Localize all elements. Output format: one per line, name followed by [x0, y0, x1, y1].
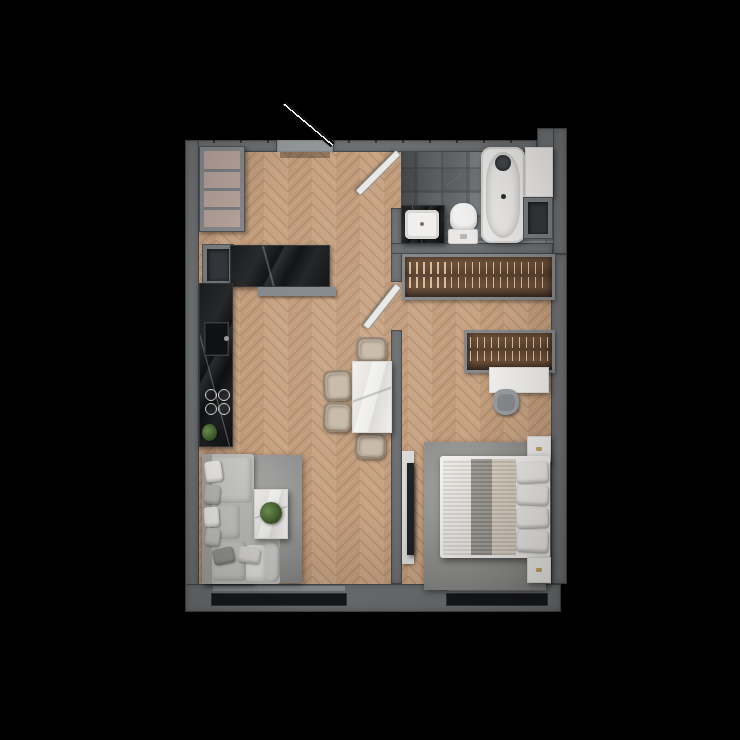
desk-chair-seat — [497, 394, 515, 411]
bathroom-shelf-cabinet — [525, 147, 553, 197]
wall-bathroom-bedroom-divider — [391, 243, 553, 254]
desk-chair — [493, 389, 519, 415]
kitchen-faucet — [224, 336, 229, 341]
kitchen-counter-run — [199, 283, 233, 447]
bedroom-wardrobe-top — [402, 254, 555, 300]
chair-seat — [327, 374, 349, 398]
bed-pillow — [516, 507, 549, 528]
bed-throw-gray — [471, 459, 492, 555]
hanger-rail — [470, 337, 549, 348]
bed-duvet-beige — [492, 459, 516, 555]
entry-shelf-divider — [204, 169, 240, 172]
burner — [205, 403, 217, 415]
window-bedroom — [446, 593, 548, 606]
sofa-pillow — [203, 507, 219, 528]
bed-pillow — [515, 461, 548, 484]
wall-right-bedroom — [551, 254, 567, 584]
entrance-shadow — [280, 152, 330, 158]
sofa-pillow — [203, 484, 221, 505]
bathtub — [481, 147, 525, 243]
bed-pillow — [515, 529, 548, 553]
chair-seat — [326, 405, 348, 428]
dining-chair-left-1 — [322, 370, 352, 402]
sofa-pillow — [204, 527, 221, 547]
toilet-flush-button — [460, 234, 467, 239]
wall-right-bathroom — [553, 128, 567, 254]
chair-seat — [360, 341, 383, 358]
dining-chair-top — [356, 337, 387, 362]
sofa-armrest-end — [264, 541, 280, 582]
hanger-rail — [409, 277, 548, 288]
entry-shelf-unit — [199, 146, 245, 232]
kitchen-niche-inset — [207, 249, 229, 281]
entry-shelf-divider — [204, 207, 240, 210]
nightstand-bottom — [527, 557, 551, 583]
dining-table — [352, 361, 392, 433]
kitchen-upper-counter — [230, 245, 330, 287]
floor-plan-stage — [0, 0, 740, 740]
kitchen-cooktop — [202, 387, 232, 417]
bathroom-niche-inset — [528, 202, 548, 234]
sofa-pillow — [237, 546, 261, 565]
dining-chair-bottom — [355, 432, 387, 459]
basin-drain — [420, 222, 424, 226]
toilet-bowl — [450, 203, 477, 231]
tv-screen — [407, 463, 414, 555]
bathtub-drain — [501, 194, 506, 199]
burner — [218, 389, 230, 401]
wall-hall-partition-lower — [391, 330, 402, 584]
window-sill-living — [213, 586, 345, 591]
dining-chair-left-2 — [322, 401, 353, 432]
entry-shelf-divider — [204, 188, 240, 191]
chair-seat — [359, 437, 383, 456]
nightstand-handle — [536, 568, 542, 572]
kitchen-plant — [202, 424, 217, 441]
bathroom-wall-niche — [523, 197, 553, 239]
burner — [218, 403, 230, 415]
wall-joint-ticks — [186, 140, 536, 143]
bed-pillow — [516, 484, 549, 505]
bathtub-faucet — [495, 155, 511, 171]
nightstand-handle — [536, 447, 542, 451]
kitchen-counter-shelf-edge — [258, 287, 336, 296]
hanger-rail — [470, 351, 549, 361]
bed-duvet-white — [443, 459, 471, 555]
wall-left — [185, 140, 199, 612]
burner — [205, 389, 217, 401]
sofa-pillow — [204, 460, 224, 483]
coffee-table-plant — [260, 502, 282, 524]
hanger-rail — [409, 262, 548, 274]
window-living — [211, 593, 347, 606]
